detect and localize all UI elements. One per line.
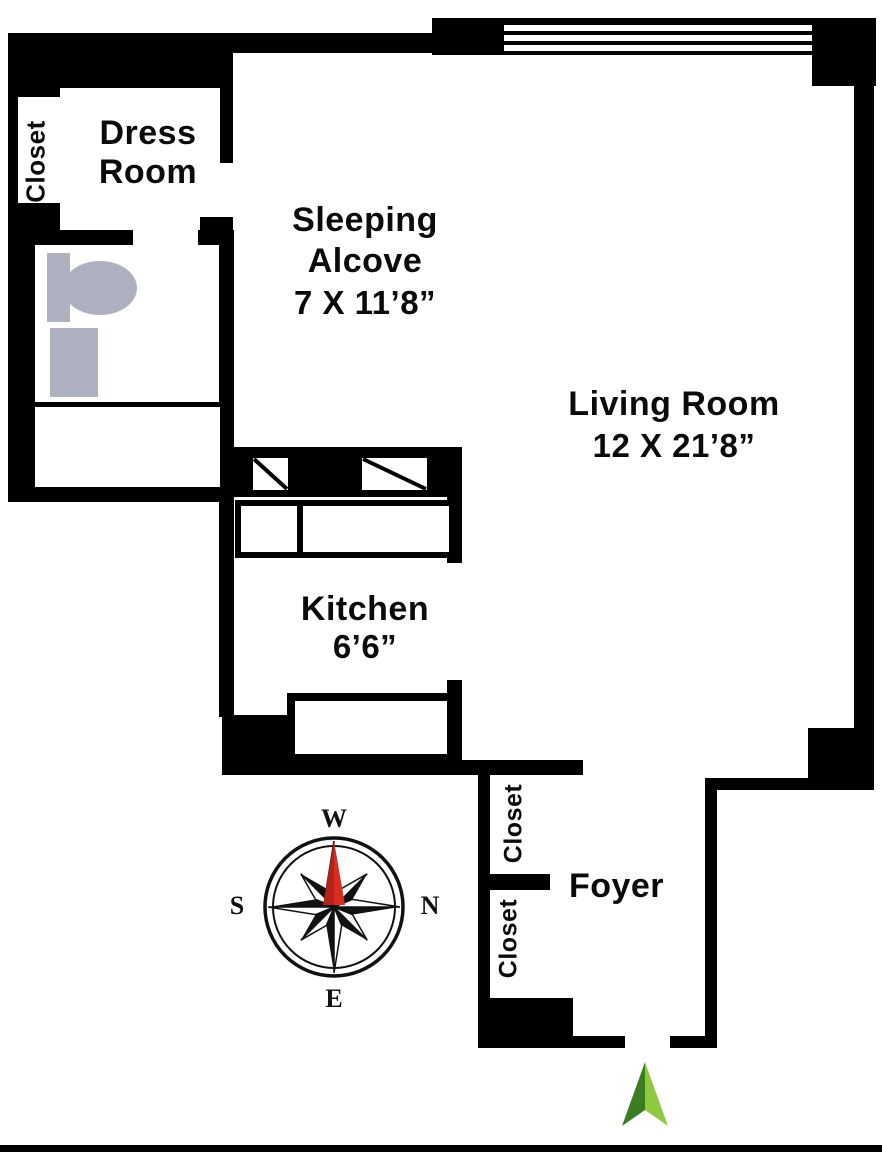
counter-divider: [297, 506, 303, 552]
top-wall-with-window: [432, 18, 876, 55]
wall-segment: [705, 778, 812, 790]
kitchen-name: Kitchen: [301, 590, 429, 628]
dress-room-name-line1: Dress: [99, 114, 196, 152]
wall-segment: [565, 1036, 625, 1048]
window-stripe: [504, 35, 812, 41]
room-label-closet-foyer-lower: Closet: [495, 859, 524, 1019]
kitchen-counter: [235, 500, 455, 558]
image-bottom-border: [0, 1145, 882, 1152]
floorplan: Dress Room Sleeping Alcove 7 X 11’8” Liv…: [0, 0, 882, 1152]
appliance-icon: [362, 458, 427, 490]
wall-segment: [222, 760, 583, 775]
wall-segment: [812, 18, 876, 86]
window-stripe: [504, 45, 812, 51]
wall-segment: [8, 33, 18, 203]
room-label-closet-left: Closet: [21, 82, 52, 242]
window-stripe: [504, 25, 812, 31]
wall-segment: [705, 790, 717, 1048]
wall-segment: [478, 998, 573, 1048]
wall-segment: [854, 86, 874, 728]
kitchen-counter: [287, 693, 455, 762]
sleeping-alcove-name-line1: Sleeping: [292, 201, 438, 239]
room-label-sleeping-alcove: Sleeping Alcove 7 X 11’8”: [255, 200, 475, 324]
compass-rose-icon: W N S E: [220, 798, 450, 1018]
foyer-name: Foyer: [569, 867, 664, 905]
wall-segment: [670, 1036, 717, 1048]
compass-label-n: N: [421, 891, 440, 920]
compass-label-s: S: [230, 891, 244, 920]
sleeping-alcove-name-line2: Alcove: [308, 242, 423, 280]
bathtub-icon: [30, 402, 225, 492]
kitchen-dimensions: 6’6”: [333, 628, 397, 665]
room-label-dress-room: Dress Room: [58, 114, 238, 192]
wall-segment: [60, 33, 233, 88]
compass-label-e: E: [325, 984, 342, 1013]
sleeping-alcove-dimensions: 7 X 11’8”: [294, 284, 436, 321]
room-label-foyer: Foyer: [544, 866, 689, 906]
living-room-name: Living Room: [568, 385, 779, 423]
wall-segment: [233, 33, 434, 53]
entrance-arrow-icon: [612, 1056, 678, 1132]
window-icon: [504, 18, 812, 55]
dress-room-name-line2: Room: [99, 153, 197, 191]
toilet-bowl-icon: [63, 261, 137, 315]
living-room-dimensions: 12 X 21’8”: [593, 427, 756, 464]
wall-segment: [808, 728, 874, 790]
appliance-icon: [253, 458, 288, 490]
room-label-living-room: Living Room 12 X 21’8”: [539, 383, 809, 467]
room-label-kitchen: Kitchen 6’6”: [265, 590, 465, 666]
sink-icon: [50, 328, 98, 397]
compass-label-w: W: [321, 804, 347, 833]
